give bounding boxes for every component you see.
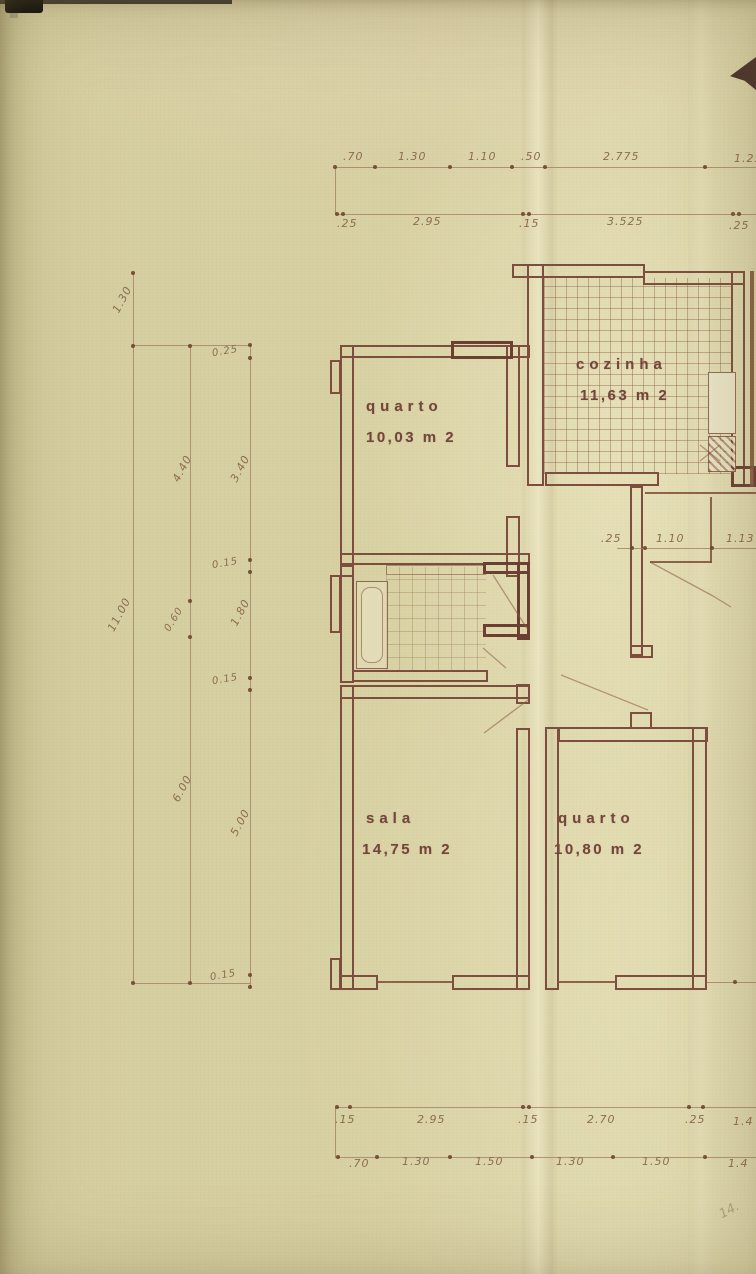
dimension-label: 11.00 — [105, 595, 134, 633]
dimension-label: .15 — [518, 1113, 539, 1126]
dimension-label: .70 — [343, 150, 364, 163]
dimension-label: 1.13 — [726, 532, 755, 545]
dimension-label: 1.4 — [733, 1115, 754, 1128]
dimension-labels-layer: .701.301.10.502.7751.25.252.95.153.525.2… — [0, 0, 756, 1274]
dimension-label: 0.60 — [163, 605, 186, 633]
dimension-label: 4.40 — [170, 453, 195, 484]
dimension-label: 0.15 — [211, 672, 239, 687]
dimension-label: .15 — [335, 1113, 356, 1126]
dimension-label: 2.70 — [587, 1113, 616, 1126]
dimension-label: .25 — [601, 532, 622, 545]
dimension-label: 3.525 — [607, 215, 644, 228]
dimension-label: 3.40 — [228, 453, 253, 484]
dimension-label: 0.15 — [209, 968, 237, 983]
dimension-label: 1.30 — [556, 1155, 585, 1168]
dimension-label: .25 — [685, 1113, 706, 1126]
dimension-label: 0.25 — [211, 344, 239, 359]
blueprint-sheet: quarto 10,03 m 2 cozinha 11,63 m 2 sala … — [0, 0, 756, 1274]
dimension-label: 2.95 — [413, 215, 442, 228]
dimension-label: 1.50 — [642, 1155, 671, 1168]
dimension-label: 6.00 — [170, 773, 195, 804]
dimension-label: 2.775 — [603, 150, 640, 163]
dimension-label: 0.15 — [211, 556, 239, 571]
dimension-label: .50 — [521, 150, 542, 163]
dimension-label: .15 — [519, 217, 540, 230]
dimension-label: 1.30 — [110, 284, 135, 315]
dimension-label: 1.80 — [228, 597, 253, 628]
dimension-label: 2.95 — [417, 1113, 446, 1126]
dimension-label: 1.30 — [398, 150, 427, 163]
dimension-label: 1.30 — [402, 1155, 431, 1168]
dimension-label: 1.50 — [475, 1155, 504, 1168]
dimension-label: 1.10 — [656, 532, 685, 545]
dimension-label: 1.10 — [468, 150, 497, 163]
dimension-label: 5.00 — [228, 807, 253, 838]
dimension-label: 1.4 — [728, 1157, 749, 1170]
dimension-label: .25 — [337, 217, 358, 230]
dimension-label: .70 — [349, 1157, 370, 1170]
dimension-label: .25 — [729, 219, 750, 232]
dimension-label: 1.25 — [734, 152, 756, 165]
